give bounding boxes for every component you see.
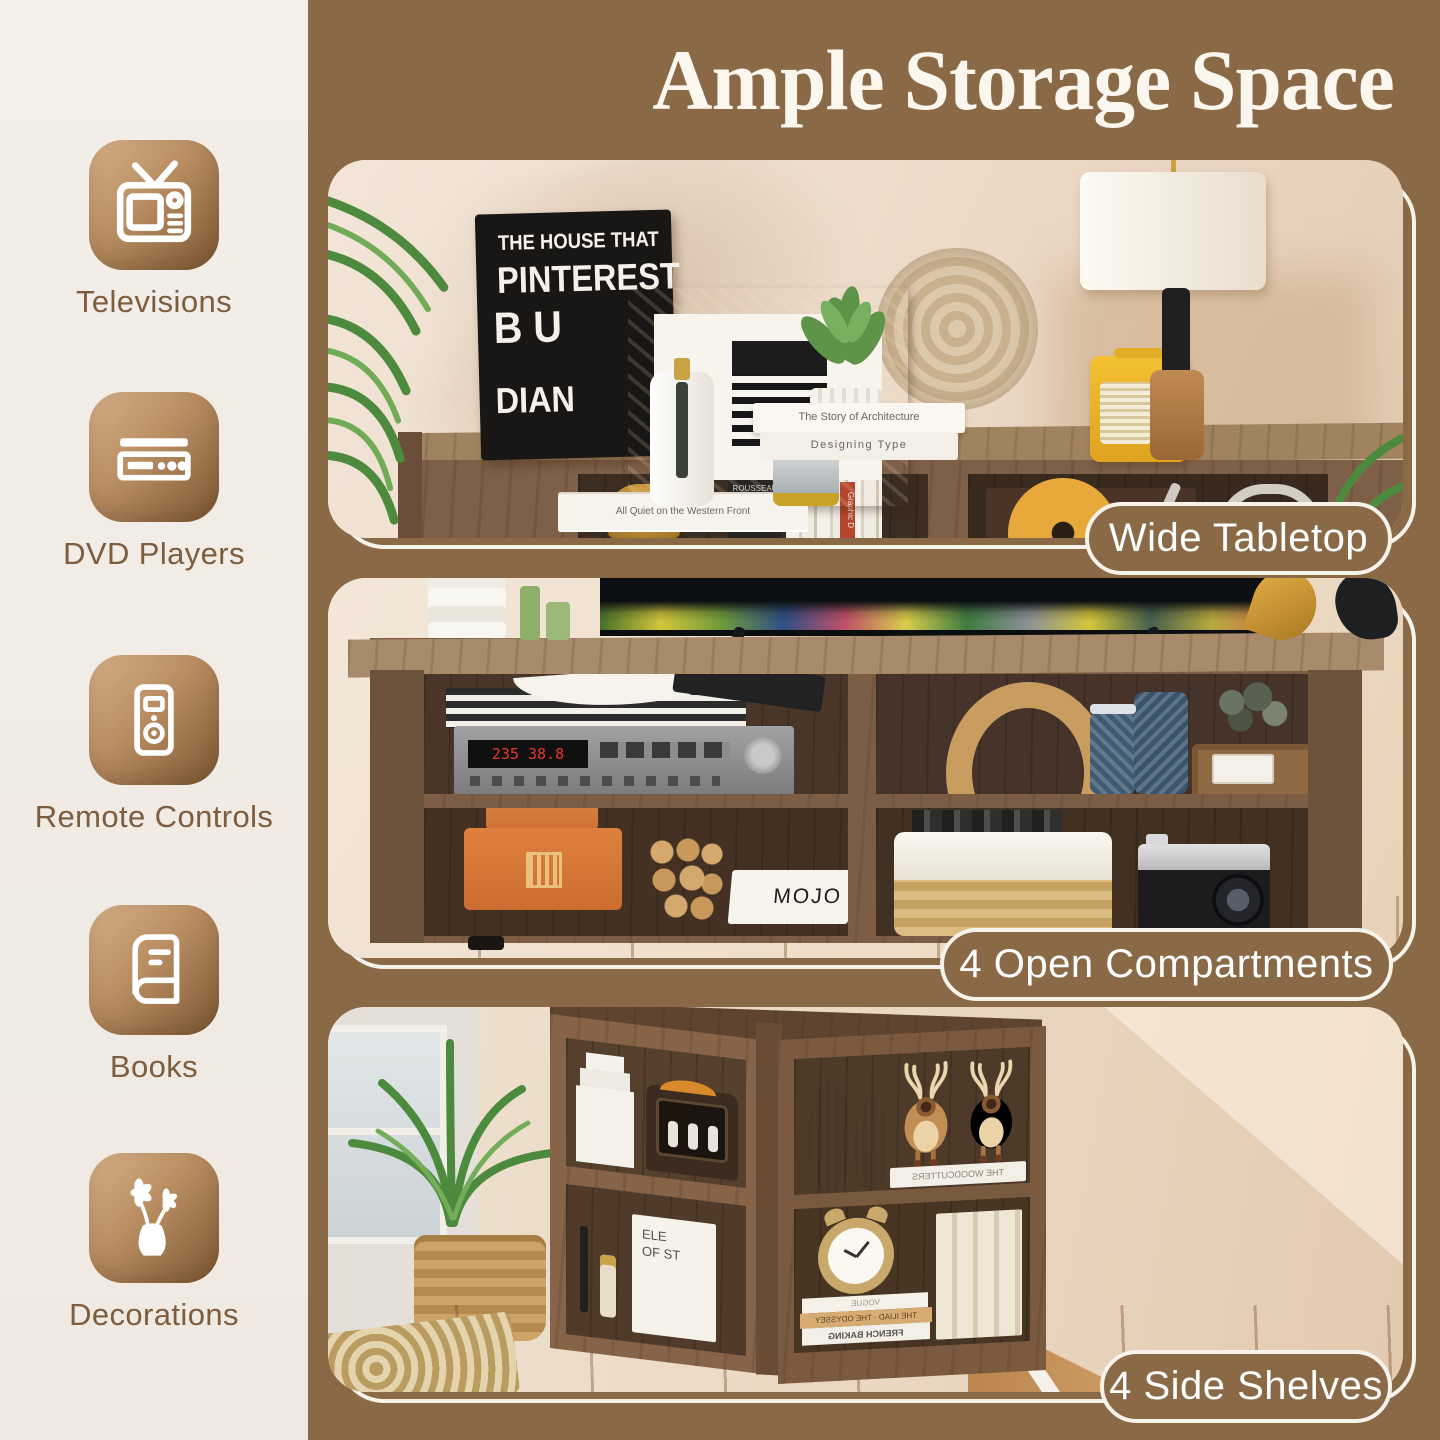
lamp-shade xyxy=(1080,172,1266,290)
white-gift-box xyxy=(1212,754,1274,784)
white-vase xyxy=(650,372,714,506)
sidebar-item-televisions: Televisions xyxy=(0,140,308,320)
compartment-bottom-right xyxy=(876,808,1308,936)
alarm-clock xyxy=(818,1216,894,1296)
cream-book-row xyxy=(936,1209,1022,1340)
wooden-bead-decor xyxy=(646,836,724,922)
sidebar-label-remote-controls: Remote Controls xyxy=(0,799,308,835)
cabinet-front-face: THE WOODCUTTERS VOGUE THE ILIAD · THE xyxy=(778,1026,1046,1384)
clock-face xyxy=(828,1226,884,1285)
potted-plant-foliage xyxy=(783,260,913,400)
product-infographic: Televisions DVD Players xyxy=(0,0,1440,1440)
spice-jar xyxy=(600,1254,616,1318)
remote-control-icon xyxy=(107,673,201,767)
orange-box-large xyxy=(464,828,622,910)
receiver-knob xyxy=(744,736,782,774)
front-shelf-top: THE WOODCUTTERS xyxy=(794,1047,1030,1195)
cabinet-left-face: ELE OF ST xyxy=(550,1014,762,1374)
tv-icon xyxy=(107,158,201,252)
page-title: Ample Storage Space xyxy=(632,28,1414,132)
blue-vase-small xyxy=(1090,712,1136,794)
palm-leaves-left xyxy=(328,160,526,538)
lamp-wood-base xyxy=(1150,370,1204,460)
photo-open-compartments: 235 38.8 xyxy=(328,578,1403,958)
book-spine-small: All Quiet on the Western Front xyxy=(558,506,808,517)
book-icon xyxy=(107,923,201,1017)
reindeer-figurines xyxy=(894,1053,1032,1172)
badge-4-side-shelves: 4 Side Shelves xyxy=(1100,1350,1392,1423)
mojo-book: MOJO xyxy=(728,870,848,924)
side-shelf-bottom: ELE OF ST xyxy=(566,1184,746,1356)
radio-vinyl-disc xyxy=(660,1077,716,1096)
green-candlestick-short xyxy=(546,602,570,640)
white-storage-boxes xyxy=(576,1085,634,1168)
badge-wide-tabletop: Wide Tabletop xyxy=(1085,502,1392,575)
vintage-radio xyxy=(646,1084,738,1181)
vase-gold-cap xyxy=(674,358,690,380)
white-book-top: The Story of Architecture xyxy=(753,403,965,433)
dvd-player-icon xyxy=(107,410,201,504)
white-tiered-decor xyxy=(428,578,506,638)
blue-vase-large xyxy=(1134,692,1188,794)
lamp-stem xyxy=(1162,288,1190,380)
radio-handle xyxy=(1114,348,1164,358)
compartment-top-right xyxy=(876,674,1308,794)
sidebar-label-dvd-players: DVD Players xyxy=(0,536,308,572)
wood-ring-sculpture xyxy=(946,682,1110,794)
elements-book-cover: ELE OF ST xyxy=(632,1214,716,1342)
badge-label: 4 Side Shelves xyxy=(1109,1364,1383,1409)
cabinet-foot xyxy=(468,936,504,950)
cabinet-tabletop xyxy=(348,632,1384,677)
camera-lens xyxy=(1212,874,1264,926)
badge-label: 4 Open Compartments xyxy=(959,942,1373,987)
photo-side-shelves-wrap: ELE OF ST xyxy=(328,1007,1403,1392)
flower-bouquet xyxy=(1206,680,1292,736)
black-stick-decor xyxy=(580,1226,588,1313)
sidebar-label-books: Books xyxy=(0,1049,308,1085)
cabinet-right-panel xyxy=(1308,670,1362,943)
jar-gold-base xyxy=(773,493,839,506)
sidebar-label-televisions: Televisions xyxy=(0,284,308,320)
sidebar-item-books: Books xyxy=(0,905,308,1085)
remote-control-icon-tile xyxy=(89,655,219,785)
sidebar-item-remote-controls: Remote Controls xyxy=(0,655,308,835)
receiver-display: 235 38.8 xyxy=(468,740,588,768)
orange-box-small xyxy=(486,808,598,830)
sidebar-label-decorations: Decorations xyxy=(0,1297,308,1333)
white-vase-short xyxy=(854,1100,890,1190)
receiver-buttons xyxy=(600,742,730,758)
wood-tray xyxy=(1192,744,1308,794)
camera-top-plate xyxy=(1138,844,1270,870)
photo-wide-tabletop: ROUSSEAU Graphic D THE HOUSE THAT PINTER… xyxy=(328,160,1403,538)
vase-lid xyxy=(1090,704,1136,714)
cabinet-left-panel xyxy=(370,670,424,943)
box-gold-emblem xyxy=(526,852,562,888)
glass-jar xyxy=(773,452,839,506)
basket-cloth-liner xyxy=(894,832,1112,880)
tv-screen-shade xyxy=(600,578,1280,636)
sidebar-item-dvd-players: DVD Players xyxy=(0,392,308,572)
photo-open-compartments-wrap: 235 38.8 xyxy=(328,578,1403,958)
clock-bell-right xyxy=(866,1204,890,1223)
compartment-top-left: 235 38.8 xyxy=(424,674,848,794)
white-vase-tall xyxy=(808,1080,852,1192)
badge-label: Wide Tabletop xyxy=(1109,516,1368,561)
book-title-designing-type: Designing Type xyxy=(760,439,958,451)
stereo-receiver: 235 38.8 xyxy=(454,726,794,794)
radio-grille xyxy=(1100,382,1152,444)
vintage-camera xyxy=(1138,844,1270,932)
book-title-architecture: The Story of Architecture xyxy=(753,411,965,423)
front-shelf-bottom: VOGUE THE ILIAD · THE ODYSSEY FRENCH BAK… xyxy=(794,1197,1030,1353)
clock-hour-hand xyxy=(844,1249,857,1258)
photo-side-shelves: ELE OF ST xyxy=(328,1007,1403,1392)
radio-knobs xyxy=(668,1120,678,1147)
feature-sidebar: Televisions DVD Players xyxy=(0,0,308,1440)
camera-dial xyxy=(1146,834,1168,846)
side-shelf-top xyxy=(566,1038,746,1188)
vase-flowers-icon-tile xyxy=(89,1153,219,1283)
green-candlestick-tall xyxy=(520,586,540,640)
book-icon-tile xyxy=(89,905,219,1035)
vase-flowers-icon xyxy=(107,1171,201,1265)
slim-bottle xyxy=(676,382,688,478)
compartment-bottom-left: MOJO xyxy=(424,808,848,936)
clock-minute-hand xyxy=(855,1241,869,1258)
photo-wide-tabletop-wrap: ROUSSEAU Graphic D THE HOUSE THAT PINTER… xyxy=(328,160,1403,538)
dvd-player-icon-tile xyxy=(89,392,219,522)
badge-4-open-compartments: 4 Open Compartments xyxy=(940,928,1393,1001)
rope-basket xyxy=(894,832,1112,936)
tv-icon-tile xyxy=(89,140,219,270)
sidebar-item-decorations: Decorations xyxy=(0,1153,308,1333)
radio-face xyxy=(656,1097,728,1164)
clock-bell-left xyxy=(822,1206,846,1227)
palm-plant xyxy=(328,1013,582,1253)
white-book-bottom: Designing Type xyxy=(760,432,958,460)
tv-screen xyxy=(600,578,1280,636)
receiver-switches xyxy=(470,776,720,786)
